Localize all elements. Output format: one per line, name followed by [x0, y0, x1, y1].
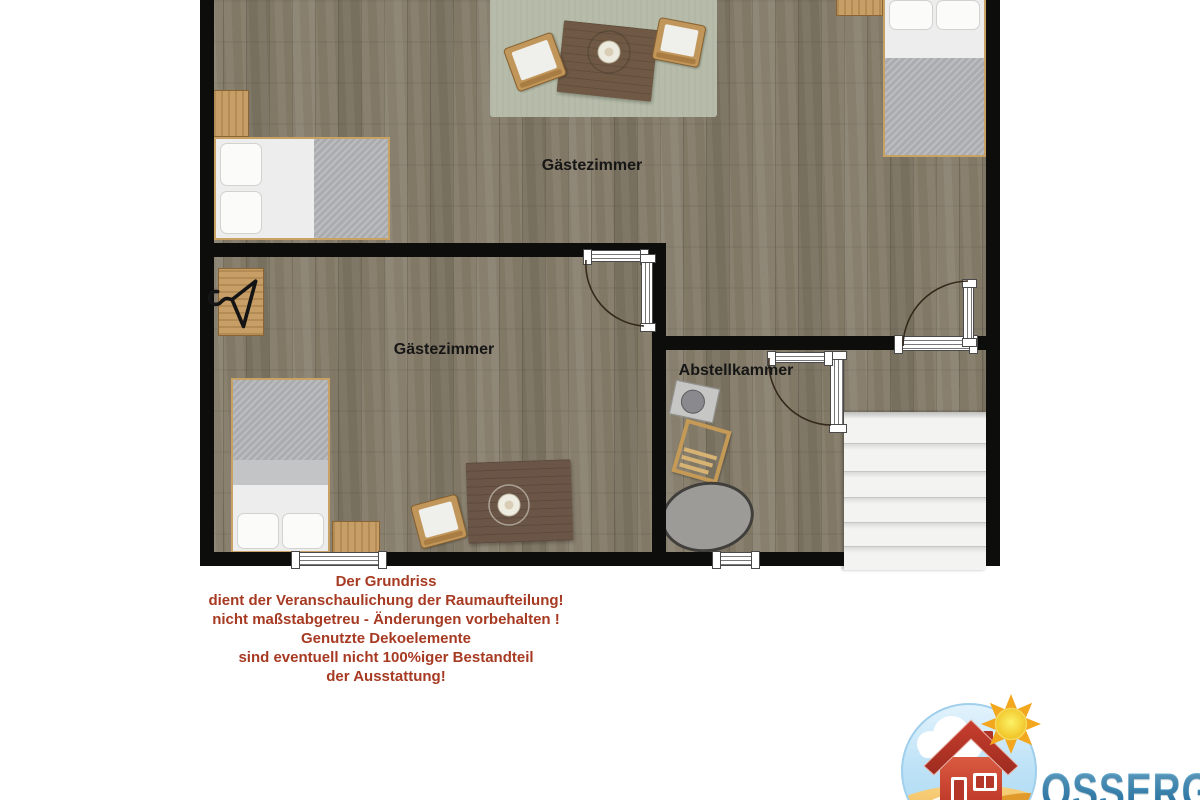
disclaimer-line: dient der Veranschaulichung der Raumauft…	[185, 591, 587, 610]
disclaimer-text: Der Grundriss dient der Veranschaulichun…	[185, 572, 587, 686]
room-label-storage: Abstellkammer	[679, 362, 794, 380]
brand-text: OSSERG	[1041, 762, 1200, 800]
table-plate-center	[605, 48, 614, 57]
disclaimer-line: nicht maßstabgetreu - Änderungen vorbeha…	[185, 610, 587, 629]
hanger-icon	[204, 271, 255, 327]
disclaimer-line: der Ausstattung!	[185, 667, 587, 686]
room-label-guest-top: Gästezimmer	[542, 157, 643, 175]
room-label-guest-middle: Gästezimmer	[394, 341, 495, 359]
floorplan-page: Gästezimmer Gästezimmer Abstellkammer De…	[0, 0, 1200, 800]
sun-icon	[979, 692, 1043, 756]
disclaimer-line: Der Grundriss	[185, 572, 587, 591]
door-swing-arc	[903, 281, 968, 346]
disclaimer-line: Genutzte Dekoelemente	[185, 629, 587, 648]
table-plate-center	[505, 501, 514, 510]
disclaimer-line: sind eventuell nicht 100%iger Bestandtei…	[185, 648, 587, 667]
door-swing-arc	[586, 260, 644, 326]
plan-overlay-graphics	[0, 0, 1200, 800]
